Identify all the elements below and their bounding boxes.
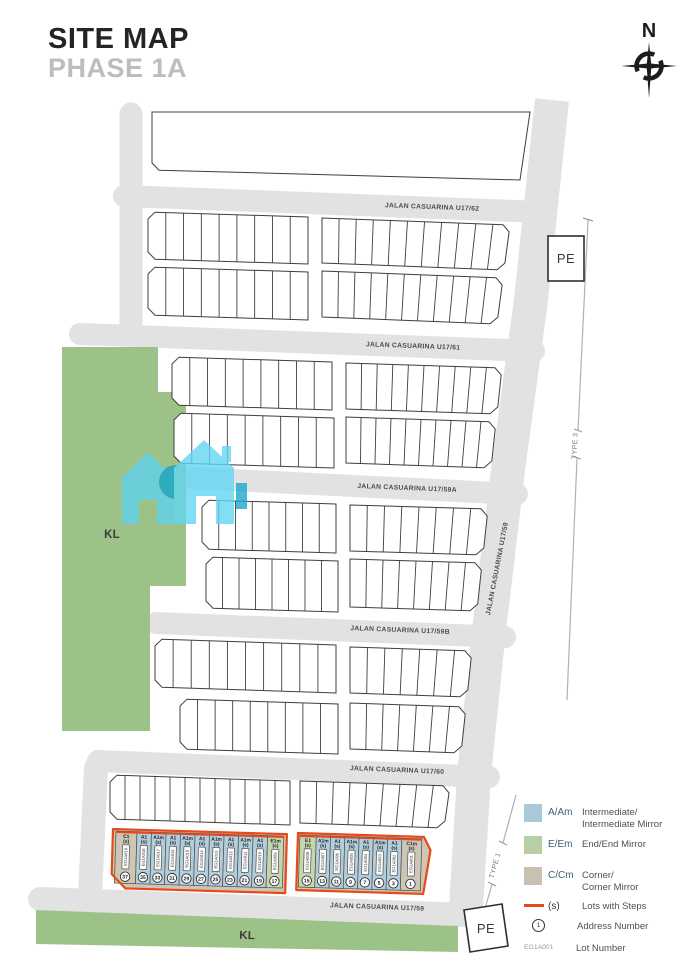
address-number: 33 [154,875,160,881]
featured-lot: A1m(s)EG1A01121 [237,835,253,887]
lot-number: EG1A002 [391,854,397,873]
featured-lot: A1m(s)EG1A0059 [343,836,359,888]
lot-block [350,703,465,753]
legend-item-steps: (s) Lots with Steps [524,898,686,913]
lot-block [322,271,502,324]
kl-left-label: KL [104,529,120,541]
featured-lot-strips: C1(s)EG1A01937A1(s)EG1A01835A1m(s)EG1A01… [111,829,431,894]
page-header: SITE MAP PHASE 1A [48,24,189,82]
featured-lot: A1(s)EG1A0023 [386,838,402,890]
legend-label: Intermediate/ Intermediate Mirror [582,804,686,831]
site-map-page: C1(s)EG1A01937A1(s)EG1A01835A1m(s)EG1A01… [0,0,695,969]
end-swatch [524,836,542,854]
type3-label: TYPE 3 [571,432,579,459]
address-number: 37 [122,874,128,880]
lot-number: EG1A013 [213,850,219,869]
lot-type-label: A1(s) [391,841,398,852]
legend-label: Corner/ Corner Mirror [582,867,686,894]
lot-type-label: A1(s) [257,838,264,849]
lot-divider [339,219,340,264]
steps-line-icon [524,904,544,907]
lot-divider [361,418,362,464]
lot-type-label: A1(s) [334,839,341,850]
lot-number: EG1A019 [123,847,129,866]
lot-number: EG1A008 [304,851,310,870]
lot-number: EG1A006 [334,852,340,871]
lot-block [172,357,332,410]
address-number: 21 [241,878,247,884]
featured-strip: E1(s)EG1A00815A1m(s)EG1A00713A1(s)EG1A00… [296,833,431,894]
featured-lot: A1m(s)EG1A01325 [208,834,224,886]
address-number: 17 [271,879,277,885]
lot-type-label: A1(s) [228,837,235,848]
featured-strip: C1(s)EG1A01937A1(s)EG1A01835A1m(s)EG1A01… [111,829,287,893]
legend-item-address: 1 Address Number [524,918,681,933]
address-number: 15 [304,878,310,884]
lot-number: EG1A010 [257,851,263,870]
intermediate-swatch [524,804,542,822]
lot-type-label: C1(s) [123,834,130,845]
lot-type-label: A1(s) [141,834,148,845]
legend-code: E/Em [548,836,582,850]
legend-label: Lots with Steps [582,898,686,913]
corner-swatch [524,867,542,885]
north-compass: N [621,20,677,98]
road-left-connector [90,768,96,896]
lot-block [180,699,338,754]
address-number: 13 [319,879,325,885]
address-number: 9 [349,880,352,886]
address-number: 25 [212,877,218,883]
address-number: 29 [183,876,189,882]
legend-item-end: E/Em End/End Mirror [524,836,686,854]
address-number: 5 [378,881,381,887]
legend-code: (s) [548,898,582,912]
watermark-chimney-icon [222,446,231,462]
address-number: 7 [363,880,366,886]
address-number: 3 [392,881,395,887]
lot-number: EG1A001 [408,854,414,873]
legend-label: Lot Number [576,940,680,955]
legend-item-lot-number: EG1A001 Lot Number [524,940,680,955]
lot-block [148,267,308,320]
featured-lot: A1(s)EG1A01019 [252,835,268,887]
kl-bottom-label: KL [239,930,255,943]
road-u17-59b [156,623,505,637]
steps-indicator [117,832,137,833]
lot-number: EG1A014 [199,849,205,868]
lot-number: EG1A007 [320,852,326,871]
lot-number-sample: EG1A001 [524,940,576,951]
featured-lot: A1(s)EG1A01631 [164,833,180,885]
lot-divider [338,272,339,318]
lot-type-label: E1(s) [305,838,312,849]
lot-divider [366,560,367,608]
featured-lot: A1m(s)EG1A00713 [315,836,331,888]
address-number-icon: 1 [532,919,545,932]
lot-number: EG1A016 [170,849,176,868]
address-number: 31 [169,876,175,882]
pe-bottom-label: PE [477,921,495,936]
lot-type-label: A1(s) [199,836,206,847]
featured-lot: E1(s)EG1A00815 [298,835,316,887]
lot-number: EG1A012 [228,850,234,869]
lot-divider [367,506,368,552]
address-number: 19 [256,878,262,884]
legend-code: A/Am [548,804,582,818]
page-subtitle: PHASE 1A [48,54,189,82]
compass-n-label: N [642,20,656,42]
lot-block [322,218,509,270]
page-title: SITE MAP [48,24,189,54]
steps-indicator [402,839,421,840]
lot-number: EG1A009 [272,852,278,871]
featured-lot: A1m(s)EG1A01529 [179,833,195,885]
lot-number: EG1A015 [184,849,190,868]
lot-number: EG1A011 [242,851,248,869]
lot-block [300,781,449,828]
lot-number: EG1A017 [155,848,161,867]
address-number: 11 [333,879,339,885]
address-number: 1 [409,882,412,888]
legend-code: C/Cm [548,867,582,881]
pe-top-label: PE [557,251,575,266]
address-number: 27 [198,877,204,883]
featured-lot: C1m(s)EG1A0011 [400,838,422,891]
featured-lot: A1(s)EG1A01223 [223,834,239,886]
watermark-bar-icon [236,483,247,509]
featured-lot: A1(s)EG1A01835 [135,832,151,884]
featured-lot: A1(s)EG1A00611 [329,836,345,888]
lot-number: EG1A018 [141,848,147,867]
lot-block [148,212,308,264]
featured-lot: A1(s)EG1A0047 [357,837,373,889]
lot-number: EG1A005 [348,853,354,872]
legend-item-corner: C/Cm Corner/ Corner Mirror [524,867,686,894]
legend-item-intermediate: A/Am Intermediate/ Intermediate Mirror [524,804,686,831]
legend-code [548,918,577,921]
featured-lot: A1(s)EG1A01427 [193,833,209,885]
lot-number: EG1A004 [363,853,369,872]
address-number: 35 [140,875,146,881]
featured-lot: A1m(s)EG1A0035 [372,837,388,889]
legend-label: End/End Mirror [582,836,686,851]
lot-divider [361,364,362,410]
lot-type-label: A1(s) [170,835,177,846]
compass-rose-icon [621,42,677,98]
type1-label: TYPE 1 [489,852,503,879]
lot-type-label: A1(s) [363,840,370,851]
lot-block [152,112,530,180]
featured-lot: C1(s)EG1A01937 [114,831,137,884]
featured-lot: E1m(s)EG1A00917 [266,836,284,888]
lot-number: EG1A003 [377,853,383,872]
featured-lot: A1m(s)EG1A01733 [150,832,166,884]
address-number: 23 [227,878,233,884]
legend-label: Address Number [577,918,681,933]
